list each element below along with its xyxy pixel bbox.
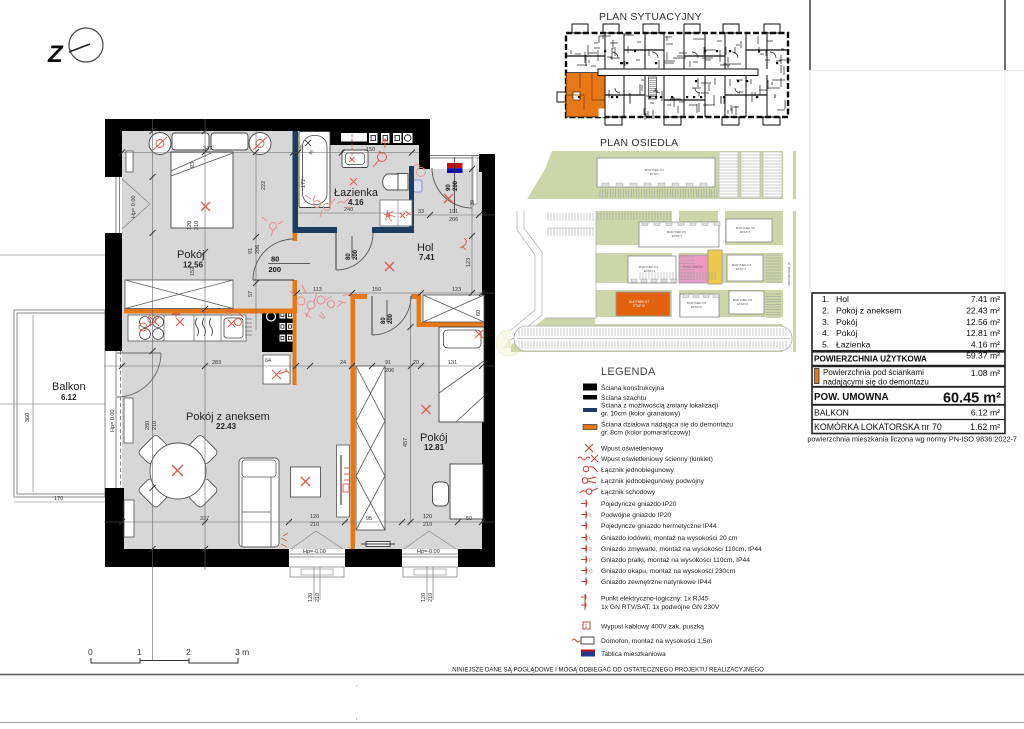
svg-text:ETAP IV: ETAP IV	[633, 304, 646, 308]
svg-text:Ściana szachtu: Ściana szachtu	[601, 393, 647, 402]
svg-text:6.12 m²: 6.12 m²	[971, 408, 1000, 418]
svg-text:123: 123	[466, 258, 472, 267]
svg-text:80: 80	[346, 253, 352, 260]
svg-text:64: 64	[265, 358, 271, 364]
svg-text:33: 33	[418, 209, 424, 215]
svg-text:1.08 m²: 1.08 m²	[971, 368, 1000, 378]
svg-text:60.45 m²: 60.45 m²	[943, 391, 1001, 407]
svg-text:Powierzchnia pod ściankami: Powierzchnia pod ściankami	[823, 368, 924, 377]
svg-text:LEGENDA: LEGENDA	[601, 366, 656, 378]
svg-text:1x GN RTV/SAT, 1x podwójne GN: 1x GN RTV/SAT, 1x podwójne GN 230V	[601, 604, 720, 611]
svg-text:ETAP 3: ETAP 3	[736, 267, 746, 271]
svg-text:ETAP 2: ETAP 2	[740, 230, 750, 234]
svg-text:Ściana konstrukcyjna: Ściana konstrukcyjna	[601, 383, 664, 392]
svg-text:360: 360	[25, 413, 31, 422]
svg-text:120: 120	[421, 593, 427, 602]
svg-text:Łącznik jednobiegunowy: Łącznik jednobiegunowy	[601, 467, 675, 474]
svg-text:39: 39	[470, 200, 476, 206]
svg-text:Hol: Hol	[836, 294, 849, 304]
svg-text:210: 210	[428, 593, 434, 602]
svg-text:80: 80	[271, 255, 279, 264]
svg-text:12.81: 12.81	[424, 443, 445, 452]
svg-text:22.43: 22.43	[216, 422, 237, 431]
svg-text:3.: 3.	[822, 317, 829, 327]
svg-text:Punkt elektryczno-logiczny: 1x: Punkt elektryczno-logiczny: 1x RJ45	[601, 596, 709, 603]
svg-text:150: 150	[372, 287, 381, 293]
svg-text:POW. UMOWNA: POW. UMOWNA	[814, 392, 889, 403]
svg-text:222: 222	[261, 181, 267, 190]
svg-text:P: P	[589, 558, 592, 563]
svg-text:Hp=-0.00: Hp=-0.00	[417, 549, 440, 555]
svg-text:120: 120	[310, 514, 319, 520]
svg-text:ul. Wrocławska: ul. Wrocławska	[787, 262, 791, 286]
svg-text:120: 120	[423, 514, 432, 520]
svg-text:powierzchnia mieszkania liczon: powierzchnia mieszkania liczona wg normy…	[807, 435, 1017, 444]
svg-text:Wypust kablowy 400V zak. puszk: Wypust kablowy 400V zak. puszką	[601, 624, 704, 631]
svg-text:Ściana działowa nadająca się d: Ściana działowa nadająca się do demontaż…	[601, 420, 733, 429]
svg-text:24: 24	[340, 360, 346, 366]
svg-text:210: 210	[152, 421, 158, 430]
svg-text:210: 210	[310, 522, 319, 528]
svg-text:131: 131	[448, 360, 457, 366]
svg-text:283: 283	[212, 360, 221, 366]
svg-text:Pokój: Pokój	[836, 317, 858, 327]
svg-text:PLAN OSIEDLA: PLAN OSIEDLA	[600, 137, 678, 149]
svg-text:150: 150	[366, 147, 375, 153]
svg-text:NINIEJSZE DANE SĄ POGLĄDOWE I: NINIEJSZE DANE SĄ POGLĄDOWE I MOGĄ ODBIE…	[452, 667, 764, 674]
svg-text:1.: 1.	[822, 294, 829, 304]
svg-text:Pojedyncze gniazdo hermetyczne: Pojedyncze gniazdo hermetyczne IP44	[601, 523, 717, 530]
svg-text:KOMÓRKA LOKATORSKA nr 70: KOMÓRKA LOKATORSKA nr 70	[814, 422, 942, 432]
svg-text:210: 210	[194, 221, 200, 230]
svg-text:7.41: 7.41	[419, 253, 435, 262]
svg-text:170: 170	[54, 496, 63, 502]
svg-text:PLAN SYTUACYJNY: PLAN SYTUACYJNY	[599, 11, 702, 23]
svg-text:gr. 10cm (kolor granatowy): gr. 10cm (kolor granatowy)	[601, 411, 680, 418]
svg-text:PLAC ZABAW: PLAC ZABAW	[683, 265, 703, 269]
svg-text:152: 152	[190, 267, 196, 276]
svg-text:O: O	[589, 569, 593, 574]
svg-text:1: 1	[137, 647, 142, 657]
svg-text:Z: Z	[47, 41, 64, 68]
svg-text:Gniazdo okapu, montaż na wysok: Gniazdo okapu, montaż na wysokości 230cm	[601, 568, 736, 575]
svg-text:Balkon: Balkon	[52, 381, 86, 393]
svg-text:BALKON: BALKON	[814, 408, 849, 418]
svg-text:ETAP III: ETAP III	[691, 305, 702, 309]
svg-text:ETAP III: ETAP III	[737, 302, 748, 306]
svg-text:Gniazdo lodówki, montaż na wys: Gniazdo lodówki, montaż na wysokości 20 …	[601, 535, 738, 542]
svg-text:Domofon, montaż na wysokości 1: Domofon, montaż na wysokości 1,5m	[601, 638, 713, 645]
svg-text:206: 206	[449, 217, 458, 223]
svg-text:200: 200	[453, 180, 459, 191]
svg-text:5.: 5.	[822, 340, 829, 350]
svg-text:Tablica mieszkaniowa: Tablica mieszkaniowa	[601, 651, 666, 658]
svg-text:ETAP IV: ETAP IV	[644, 269, 655, 273]
svg-text:gr. 8cm (kolor pomarańczowy): gr. 8cm (kolor pomarańczowy)	[601, 430, 691, 437]
svg-text:0: 0	[88, 647, 93, 657]
svg-text:123: 123	[452, 287, 461, 293]
svg-text:91: 91	[385, 360, 391, 366]
svg-text:Hp= 0.00: Hp= 0.00	[110, 410, 116, 432]
svg-text:4.16: 4.16	[348, 198, 364, 207]
svg-text:7.41 m²: 7.41 m²	[971, 294, 1000, 304]
svg-text:280: 280	[145, 421, 151, 430]
svg-text:Łącznik jednobiegunowy podwójn: Łącznik jednobiegunowy podwójny	[601, 478, 705, 485]
svg-text:80: 80	[381, 317, 387, 324]
svg-text:200: 200	[353, 249, 359, 260]
svg-text:90: 90	[446, 184, 452, 191]
svg-text:101: 101	[449, 209, 458, 215]
svg-text:1: 1	[585, 624, 588, 630]
svg-text:50: 50	[466, 516, 472, 522]
svg-text:Gniazdo zewnętrzne natynkowe I: Gniazdo zewnętrzne natynkowe IP44	[601, 579, 712, 586]
svg-text:Gniazdo pralki, montaż na wyso: Gniazdo pralki, montaż na wysokości 110c…	[601, 557, 750, 564]
svg-text:12.81 m²: 12.81 m²	[966, 328, 1000, 338]
svg-text:20: 20	[413, 360, 419, 366]
svg-text:113: 113	[313, 287, 322, 293]
svg-text:3 m: 3 m	[235, 647, 249, 657]
svg-text:2: 2	[186, 647, 191, 657]
svg-text:Pokój z aneksem: Pokój z aneksem	[836, 306, 901, 316]
svg-text:Podwójne gniazdo IP20: Podwójne gniazdo IP20	[601, 512, 672, 519]
svg-text:ETAP 5: ETAP 5	[672, 234, 682, 238]
svg-text:4.: 4.	[822, 328, 829, 338]
svg-text:POWIERZCHNIA UŻYTKOWA: POWIERZCHNIA UŻYTKOWA	[814, 354, 927, 364]
svg-text:22.43 m²: 22.43 m²	[966, 306, 1000, 316]
svg-text:120: 120	[187, 221, 193, 230]
svg-text:Łazienka: Łazienka	[836, 340, 871, 350]
svg-text:200: 200	[388, 313, 394, 324]
svg-text:1.62 m²: 1.62 m²	[970, 422, 1000, 432]
svg-text:Ściana z możliwością zmiany lo: Ściana z możliwością zmiany lokalizacji	[601, 401, 719, 410]
svg-text:57: 57	[248, 291, 254, 297]
svg-text:206: 206	[255, 245, 261, 254]
svg-text:210: 210	[423, 522, 432, 528]
svg-text:Pokój: Pokój	[177, 249, 205, 261]
svg-text:172: 172	[301, 179, 307, 188]
svg-text:206: 206	[385, 368, 394, 374]
svg-text:91: 91	[248, 248, 254, 254]
svg-text:Z: Z	[589, 547, 592, 552]
svg-text:Hp= 0.00: Hp= 0.00	[131, 196, 137, 218]
svg-text:210: 210	[315, 593, 321, 602]
svg-text:Pokój: Pokój	[836, 328, 858, 338]
svg-text:Wpust oświetleniowy ścienny (k: Wpust oświetleniowy ścienny (kinkiet)	[601, 456, 713, 463]
svg-text:12.56 m²: 12.56 m²	[966, 317, 1000, 327]
svg-text:Pojedyncze gniazdo IP20: Pojedyncze gniazdo IP20	[601, 501, 677, 508]
svg-text:95: 95	[366, 516, 372, 522]
svg-text:59.37 m²: 59.37 m²	[966, 351, 1000, 361]
svg-text:93: 93	[190, 162, 196, 168]
svg-text:Hp=-0.00: Hp=-0.00	[303, 549, 326, 555]
svg-text:ETAP I: ETAP I	[650, 172, 659, 176]
svg-text:120: 120	[308, 593, 314, 602]
svg-text:Wpust oświetleniowy: Wpust oświetleniowy	[601, 446, 664, 453]
svg-text:6.12: 6.12	[61, 393, 77, 402]
svg-text:Łącznik schodowy: Łącznik schodowy	[601, 489, 656, 496]
svg-text:200: 200	[269, 265, 282, 274]
svg-text:457: 457	[403, 438, 409, 447]
svg-text:Gniazdo zmywarki, montaż na wy: Gniazdo zmywarki, montaż na wysokości 11…	[601, 546, 762, 553]
svg-text:nadającymi się do demontażu: nadającymi się do demontażu	[823, 378, 929, 387]
svg-text:2.: 2.	[822, 306, 829, 316]
svg-text:60: 60	[476, 310, 482, 316]
svg-text:4.16 m²: 4.16 m²	[971, 340, 1000, 350]
